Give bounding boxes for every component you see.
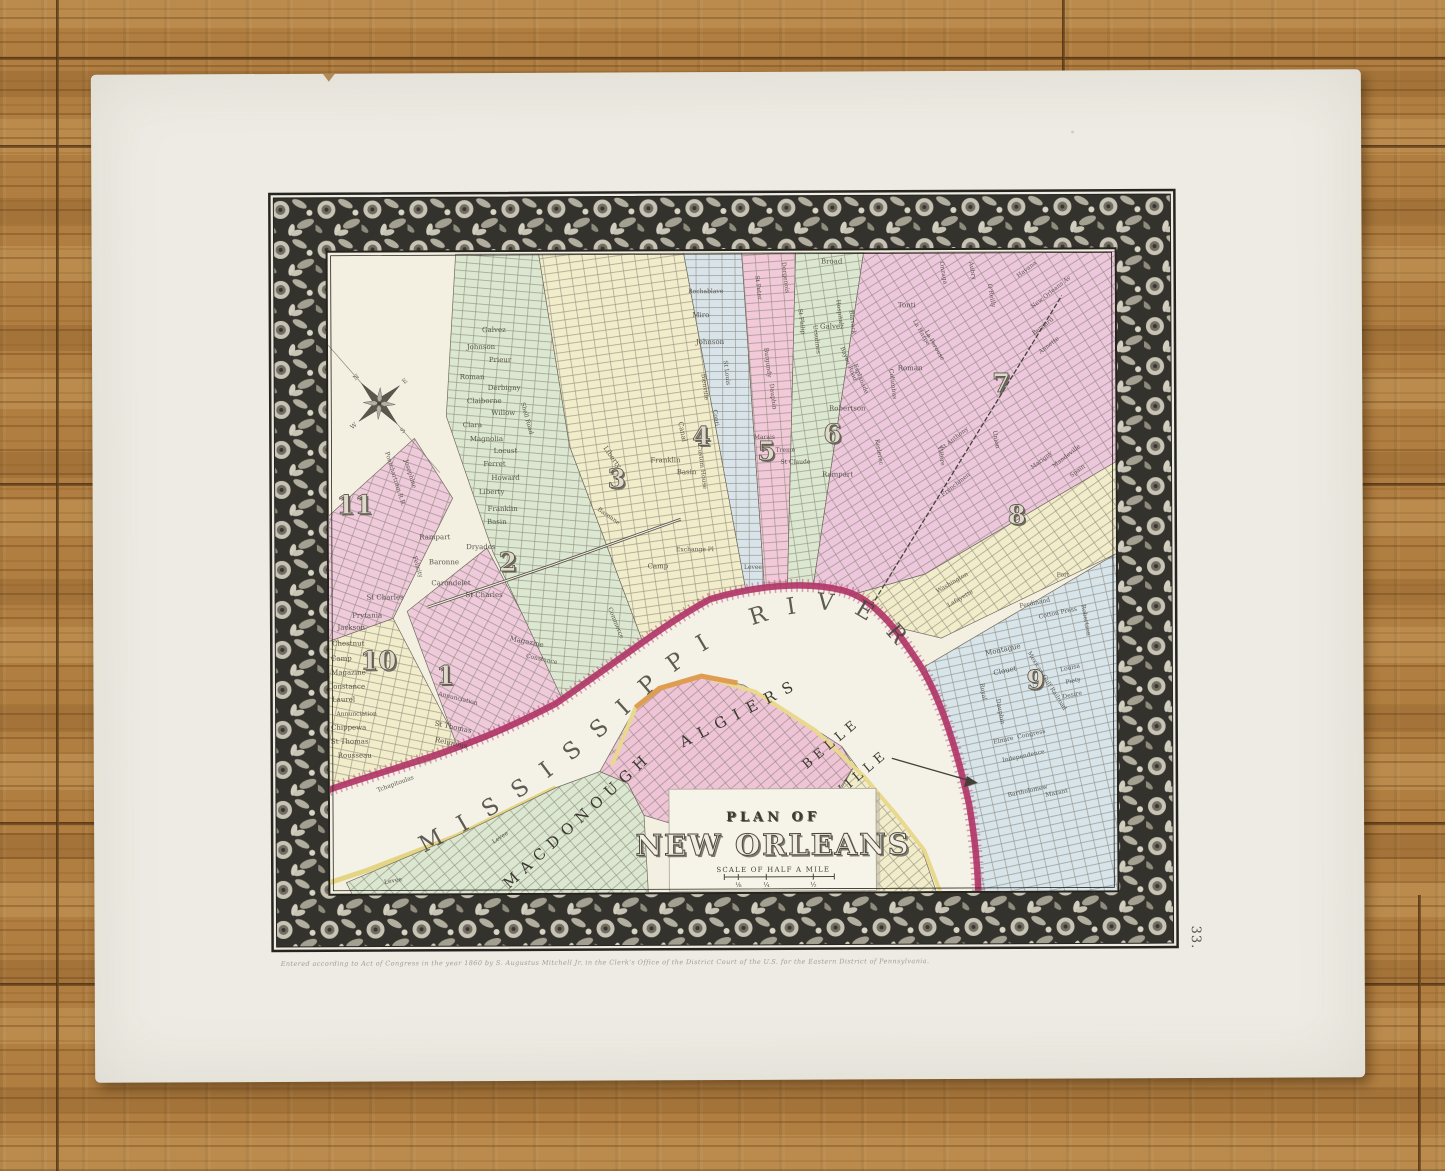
street-label: Levee [744, 564, 763, 571]
street-label: Roman [898, 364, 923, 372]
street-label: Annunciation [335, 711, 377, 718]
street-label: Claiborne [467, 397, 502, 405]
street-label: Ferret [483, 460, 505, 468]
district-number: 10 [360, 646, 396, 676]
district-number: 2 [499, 548, 517, 578]
engraved-map-plate: NESW GalvezJohnsonPrieurRomanDerbignyCla… [265, 186, 1181, 955]
street-label: Dryades [466, 543, 496, 551]
street-label: Rampart [419, 533, 450, 541]
district-number: 11 [337, 491, 373, 521]
street-label: Galvez [820, 322, 844, 330]
street-label: Treme [776, 447, 796, 454]
street-label: Franklin [650, 456, 681, 464]
paper-sheet: NESW GalvezJohnsonPrieurRomanDerbignyCla… [91, 69, 1365, 1083]
street-label: Rousseau [338, 752, 373, 760]
street-label: Basin [677, 468, 697, 476]
street-label: Miro [692, 311, 709, 319]
street-label: Locust [494, 447, 518, 455]
street-label: Willow [491, 409, 515, 417]
street-label: Derbigny [488, 384, 521, 392]
plate-number: 33. [1188, 926, 1203, 950]
district-number: 1 [436, 661, 454, 691]
title-cartouche: PLAN OF PLAN OF NEW ORLEANS NEW ORLEANS … [635, 788, 913, 895]
street-label: Exchange Pl [676, 546, 714, 553]
street-label: Franklin [488, 505, 519, 513]
street-label: Camp [648, 562, 669, 570]
district-number: 7 [992, 369, 1010, 399]
street-label: Constance [328, 683, 365, 691]
street-label: Laurel [332, 696, 356, 704]
street-label: Johnson [695, 338, 725, 346]
cartouche-line1: PLAN OF [726, 810, 820, 825]
street-label: Basin [487, 518, 507, 526]
scale-fraction: ⅛ [735, 881, 742, 889]
street-label: Robertson [829, 404, 866, 412]
street-label: St Charles [465, 591, 503, 599]
photo-of-antique-map: NESW GalvezJohnsonPrieurRomanDerbignyCla… [0, 0, 1445, 1171]
scale-fraction: ¼ [763, 881, 770, 889]
cartouche-title: NEW ORLEANS [636, 827, 911, 862]
street-label: Broad [821, 257, 843, 265]
street-label: Tonti [898, 301, 917, 309]
district-number: 8 [1008, 501, 1026, 531]
street-label: Howard [491, 474, 520, 482]
street-label: St Claude [781, 459, 811, 466]
street-label: Carondelet [431, 579, 471, 587]
street-label: St Thomas [331, 738, 369, 746]
street-label: Johnson [466, 343, 496, 351]
street-label: Galvez [482, 326, 506, 334]
district-number: 6 [823, 420, 841, 450]
district-number: 9 [1026, 666, 1044, 696]
street-label: Camp [331, 655, 352, 663]
street-label: Magnolia [470, 435, 503, 443]
street-label: Jackson [336, 624, 365, 632]
street-label: Clara [463, 421, 482, 429]
street-label: Rochablave [688, 288, 724, 295]
street-label: St Charles [366, 593, 404, 601]
copyright-imprint: Entered according to Act of Congress in … [281, 956, 1186, 968]
floor-plank-joint [56, 0, 59, 1171]
street-label: Prieur [489, 356, 512, 364]
paper-tear-notch [323, 74, 335, 82]
street-label: Prytania [352, 612, 382, 620]
district-number: 5 [757, 437, 775, 467]
district-number: 4 [692, 422, 710, 452]
street-label: Liberty [479, 488, 505, 496]
floor-plank-joint [1418, 895, 1421, 1171]
district-number: 3 [607, 464, 625, 494]
street-label: Baronne [429, 558, 459, 566]
foxing-spot [1071, 130, 1074, 133]
street-label: Port [1057, 572, 1070, 579]
street-label: Roman [460, 373, 485, 381]
scale-fraction: ½ [810, 881, 816, 889]
street-label: Chippewa [331, 724, 366, 732]
floor-plank-seam [0, 57, 1445, 60]
street-label: Rampart [822, 470, 853, 478]
scale-label: SCALE OF HALF A MILE [716, 866, 830, 874]
